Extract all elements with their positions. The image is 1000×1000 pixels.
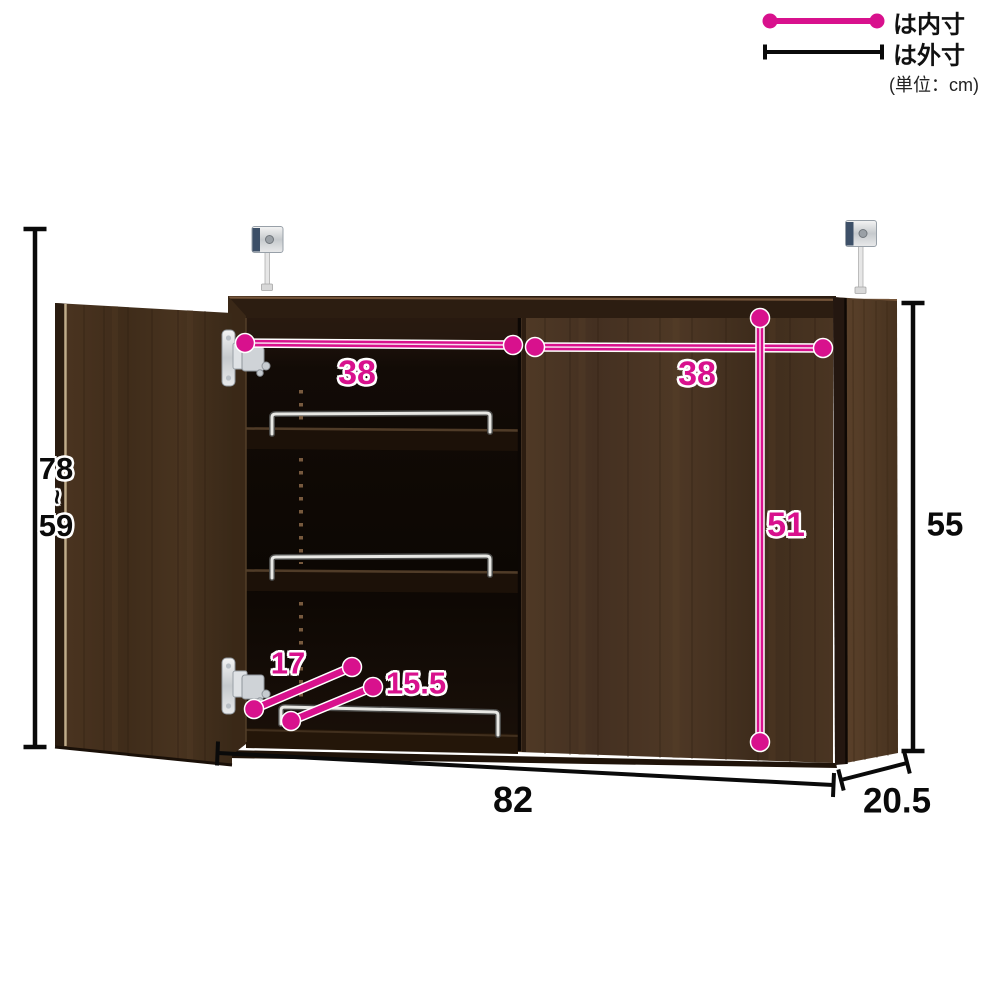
range-tilde: ~ xyxy=(43,489,69,504)
left-door-open xyxy=(55,303,232,765)
ceiling-mount-right xyxy=(846,221,877,294)
shelf-middle xyxy=(246,569,518,593)
product-dimension-diagram: は内寸 は外寸 (単位：cm) 38 38 51 55 78 ~ 59 17 1… xyxy=(0,0,1000,1000)
legend-inner-line xyxy=(763,14,885,29)
dim-inner-depth-top-label: 17 xyxy=(271,648,305,679)
legend-unit-label: (単位：cm) xyxy=(889,71,979,97)
range-min: 59 xyxy=(39,510,73,541)
dim-inner-width-left-label: 38 xyxy=(338,356,376,390)
legend-outer-label: は外寸 xyxy=(893,36,965,71)
dim-inner-depth-shelf-label: 15.5 xyxy=(386,668,446,699)
legend-key-lines xyxy=(763,14,885,60)
dim-line-outer-height xyxy=(902,303,925,751)
dim-outer-height-range-label: 78 ~ 59 xyxy=(39,453,73,541)
range-max: 78 xyxy=(39,453,73,484)
legend-inner-label: は内寸 xyxy=(893,5,965,40)
dim-outer-depth-label: 20.5 xyxy=(863,784,931,819)
legend-outer-line xyxy=(763,45,884,60)
shelf-upper xyxy=(246,427,518,451)
cabinet-top-rail xyxy=(228,296,897,318)
cabinet-side-panel xyxy=(833,297,898,765)
dim-outer-height-label: 55 xyxy=(927,508,964,541)
dim-inner-width-right-label: 38 xyxy=(678,357,716,391)
dim-outer-width-label: 82 xyxy=(493,782,533,818)
cabinet-illustration xyxy=(0,0,1000,1000)
ceiling-mount-left xyxy=(252,227,283,291)
dim-inner-height-label: 51 xyxy=(767,508,805,542)
